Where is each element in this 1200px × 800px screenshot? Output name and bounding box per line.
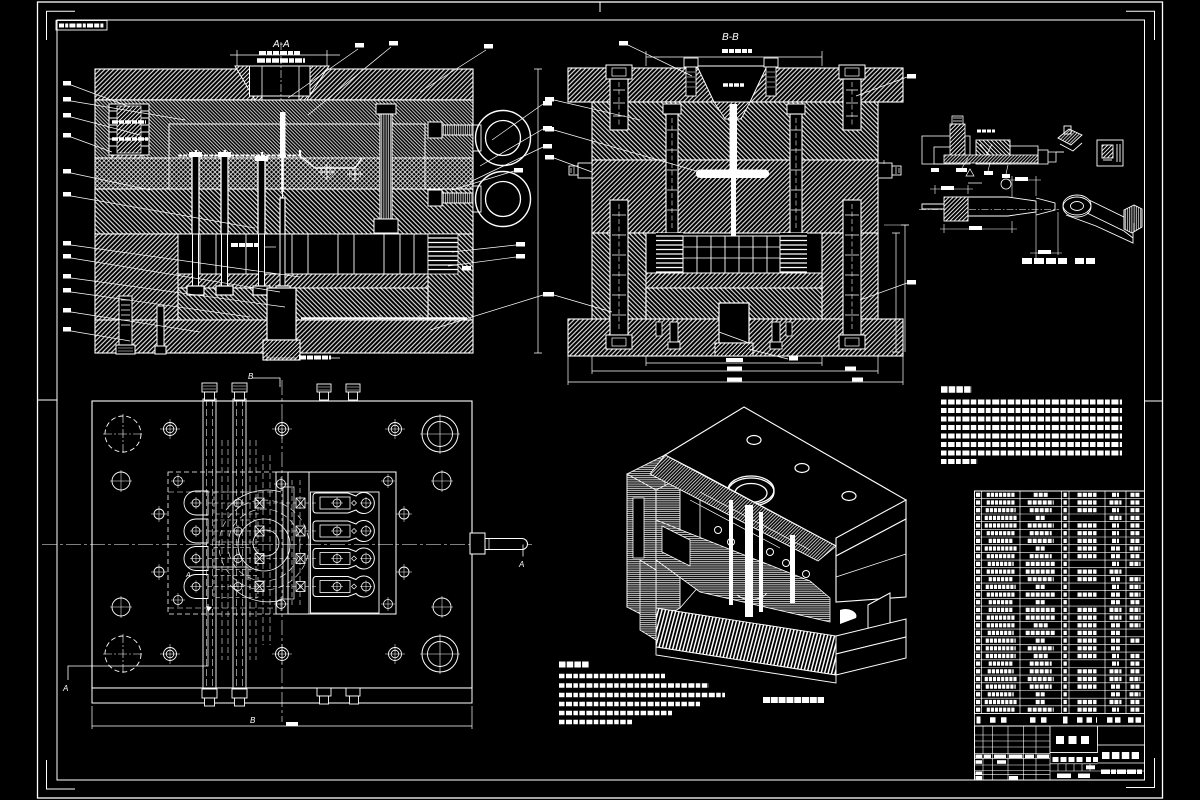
svg-text:B-B: B-B	[722, 32, 739, 43]
svg-text:A: A	[518, 560, 524, 569]
svg-text:A: A	[185, 572, 191, 579]
svg-text:B: B	[248, 372, 254, 381]
svg-text:A: A	[62, 684, 68, 693]
svg-text:B: B	[250, 716, 256, 725]
